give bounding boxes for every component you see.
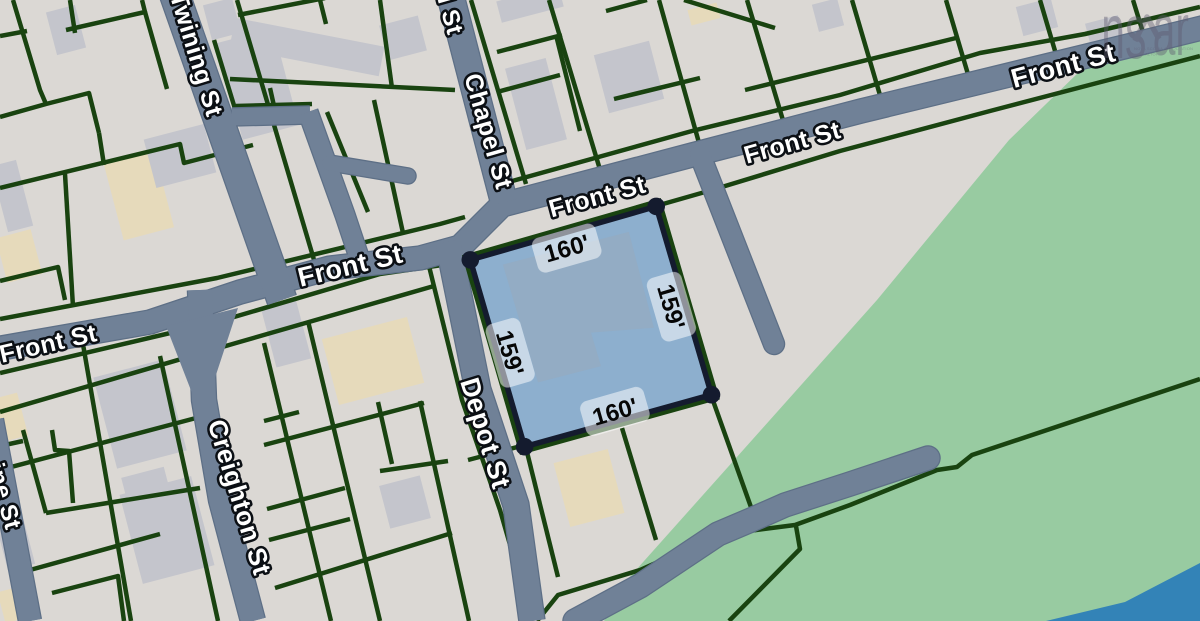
svg-text:NOVA SCOTIA ASSOCIATION: NOVA SCOTIA ASSOCIATION [1134,46,1193,51]
svg-text:ar: ar [1153,0,1189,71]
svg-text:REALTORS: REALTORS [1139,52,1162,57]
